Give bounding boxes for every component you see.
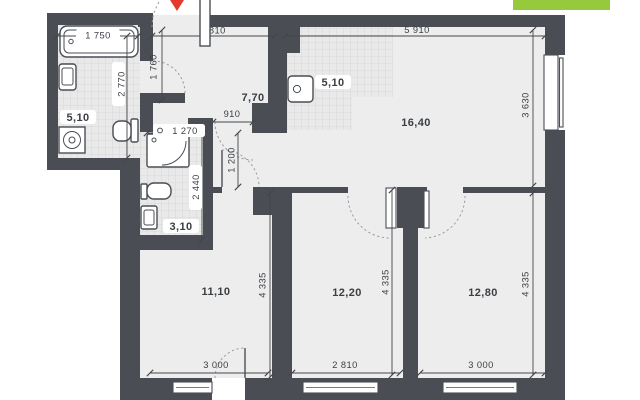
- room-area-bathroom: 5,10: [66, 112, 89, 124]
- dimension-label: 1 750: [85, 30, 111, 40]
- wall: [463, 187, 545, 193]
- dimension-label: 3 000: [203, 360, 229, 370]
- room-area-hallway: 7,70: [241, 92, 264, 104]
- wc-toilet-icon: [141, 183, 171, 199]
- kitchen-sink-icon: [288, 76, 313, 102]
- wall: [210, 15, 565, 27]
- wall: [268, 27, 300, 53]
- window-right: [544, 55, 558, 130]
- wall: [545, 130, 565, 378]
- wall: [138, 15, 152, 27]
- bedroom-middle-door-leaf: [386, 188, 396, 228]
- room-area-wc: 3,10: [169, 221, 192, 233]
- dimension-label: 2 440: [191, 174, 201, 200]
- wall: [545, 27, 565, 55]
- dimension-label: 1 270: [172, 126, 198, 136]
- window-right-outer-pane: [560, 58, 564, 127]
- wall: [203, 132, 213, 250]
- wall: [140, 93, 185, 103]
- room-area-kitchen-zone: 5,10: [321, 77, 344, 89]
- room-area-bedroom-right: 12,80: [468, 287, 498, 299]
- bath-sink-icon: [59, 64, 76, 90]
- dimension-label: 3 000: [468, 360, 494, 370]
- dimension-label: 1 760: [148, 54, 158, 80]
- bedroom-right-door-leaf: [424, 191, 429, 228]
- entrance-arrow-icon: [170, 0, 184, 11]
- dimension-label: 3 630: [520, 92, 530, 118]
- dimension-label: 4 335: [257, 272, 267, 298]
- washing-machine-icon: [59, 127, 85, 153]
- floor-plan-canvas: 1 750 2 810 5 910 2 770 1 760 910 1 270 …: [0, 0, 640, 400]
- room-area-living-room: 16,40: [401, 117, 431, 129]
- balcony-door-opening: [212, 378, 245, 400]
- dimension-label: 2 810: [332, 360, 358, 370]
- wall: [47, 158, 140, 170]
- wall: [140, 103, 153, 132]
- wall: [47, 13, 147, 25]
- dimension-label: 5 910: [404, 25, 430, 35]
- wall: [252, 103, 287, 133]
- room-area-bedroom-middle: 12,20: [332, 287, 362, 299]
- shower-icon: [147, 134, 189, 167]
- wall: [268, 53, 287, 103]
- wall: [120, 170, 140, 400]
- wall: [397, 187, 427, 228]
- room-area-bedroom-left: 11,10: [202, 286, 231, 298]
- dimension-label: 2 770: [116, 71, 126, 97]
- dimension-label: 1 200: [226, 147, 236, 173]
- dimension-label: 4 335: [520, 271, 530, 297]
- wall: [272, 190, 292, 378]
- wall: [403, 228, 418, 378]
- floor-entry-gap: [152, 15, 200, 27]
- bath-toilet-icon: [113, 119, 138, 142]
- neighbor-wall-stub: [200, 0, 210, 46]
- wall: [213, 187, 222, 193]
- green-badge: [513, 0, 610, 10]
- wc-sink-icon: [141, 206, 157, 229]
- floor-plan: 1 750 2 810 5 910 2 770 1 760 910 1 270 …: [0, 0, 640, 400]
- dimension-label: 910: [224, 109, 241, 119]
- dimension-label: 4 335: [380, 269, 390, 295]
